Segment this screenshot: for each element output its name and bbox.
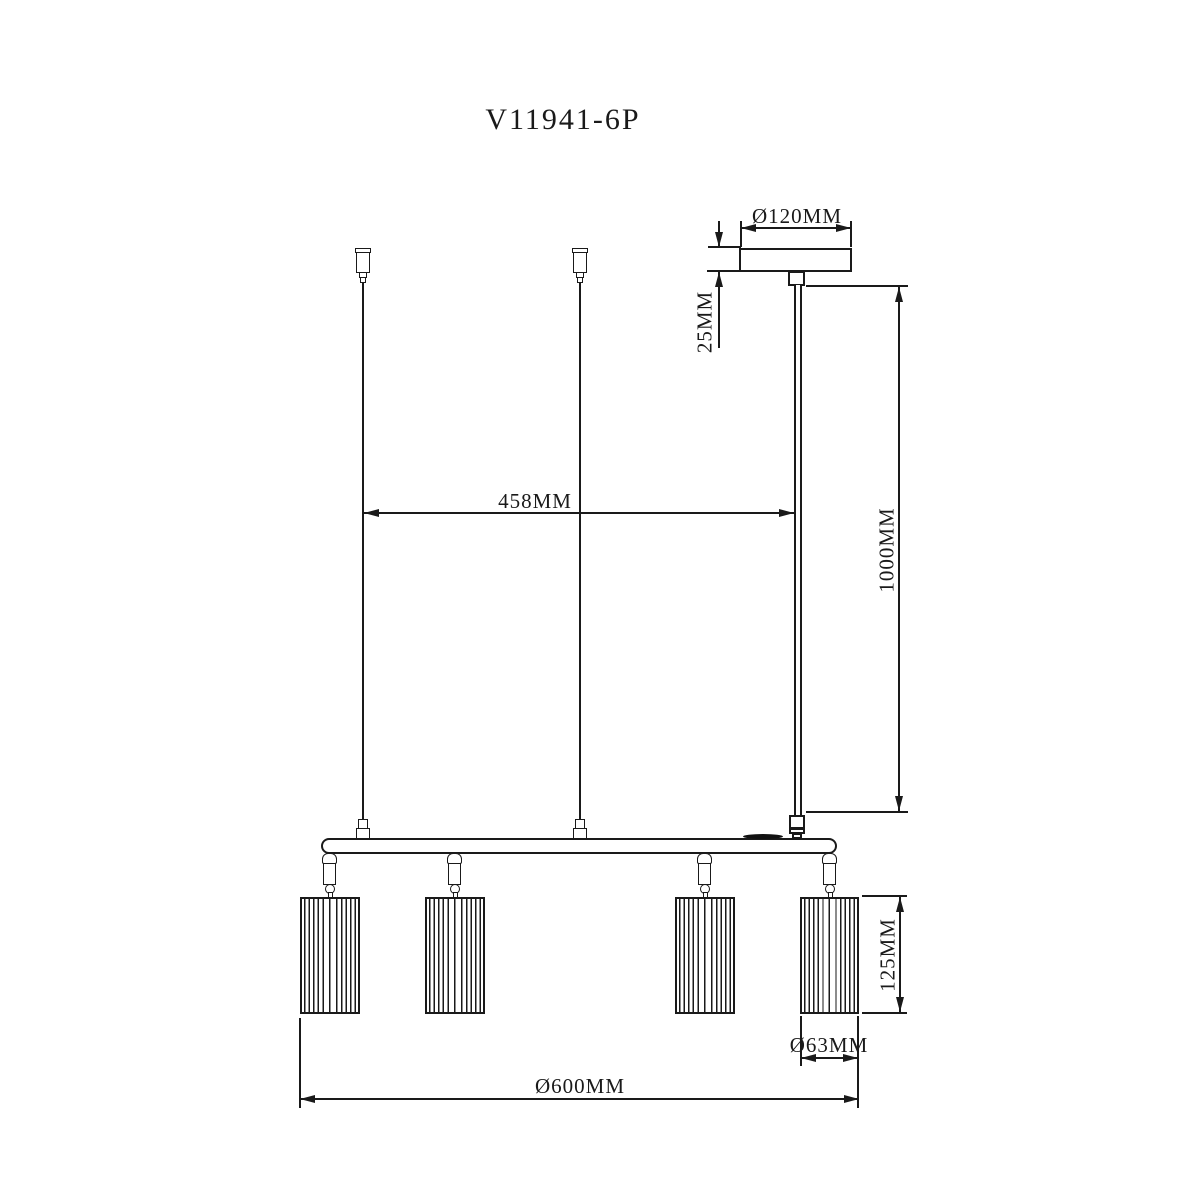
holder-body — [323, 863, 336, 885]
holder-body — [823, 863, 836, 885]
fixture-bar — [321, 838, 837, 854]
gripper-body — [356, 252, 370, 273]
suspension-cable-left — [362, 283, 364, 830]
dimension-line — [364, 512, 794, 514]
arrowhead-up-icon — [896, 897, 904, 912]
page-title: V11941-6P — [485, 105, 640, 135]
rod-bottom-connector — [789, 815, 805, 829]
arrowhead-left-icon — [364, 509, 379, 517]
rod-top-connector — [788, 271, 805, 286]
suspension-spacing-label: 458MM — [498, 491, 572, 512]
extension-line — [707, 270, 741, 272]
canopy-height-label: 25MM — [695, 291, 716, 353]
technical-drawing-sheet: V11941-6P — [0, 0, 1200, 1200]
arrowhead-right-icon — [843, 1054, 858, 1062]
extension-line — [806, 285, 908, 287]
lamp-shade-1 — [300, 897, 360, 1014]
cable-bar-connector-middle-lower — [573, 828, 587, 839]
arrowhead-left-icon — [741, 224, 756, 232]
dimension-line — [741, 227, 851, 229]
arrowhead-left-icon — [801, 1054, 816, 1062]
lamp-shade-2 — [425, 897, 485, 1014]
dimension-line — [300, 1098, 859, 1100]
arrowhead-right-icon — [779, 509, 794, 517]
arrowhead-down-icon — [895, 796, 903, 811]
arrowhead-down-icon — [715, 232, 723, 247]
arrowhead-up-icon — [715, 272, 723, 287]
lamp-shade-4 — [800, 897, 859, 1014]
holder-body — [698, 863, 711, 885]
ceiling-canopy — [739, 248, 852, 272]
canopy-diameter-label: Ø120MM — [752, 206, 842, 227]
arrowhead-down-icon — [896, 997, 904, 1012]
lamp-shade-3 — [675, 897, 735, 1014]
bar-joint-detail — [743, 834, 783, 839]
arrowhead-right-icon — [844, 1095, 859, 1103]
holder-body — [448, 863, 461, 885]
fixture-diameter-label: Ø600MM — [535, 1076, 625, 1097]
extension-line — [708, 246, 741, 248]
suspension-rod — [794, 285, 802, 816]
shade-diameter-label: Ø63MM — [790, 1035, 869, 1056]
arrowhead-right-icon — [836, 224, 851, 232]
extension-line — [806, 811, 908, 813]
drop-height-label: 1000MM — [877, 507, 898, 592]
arrowhead-left-icon — [300, 1095, 315, 1103]
cable-bar-connector-left-lower — [356, 828, 370, 839]
suspension-cable-middle — [579, 283, 581, 830]
gripper-body — [573, 252, 587, 273]
arrowhead-up-icon — [895, 287, 903, 302]
shade-height-label: 125MM — [878, 918, 899, 992]
